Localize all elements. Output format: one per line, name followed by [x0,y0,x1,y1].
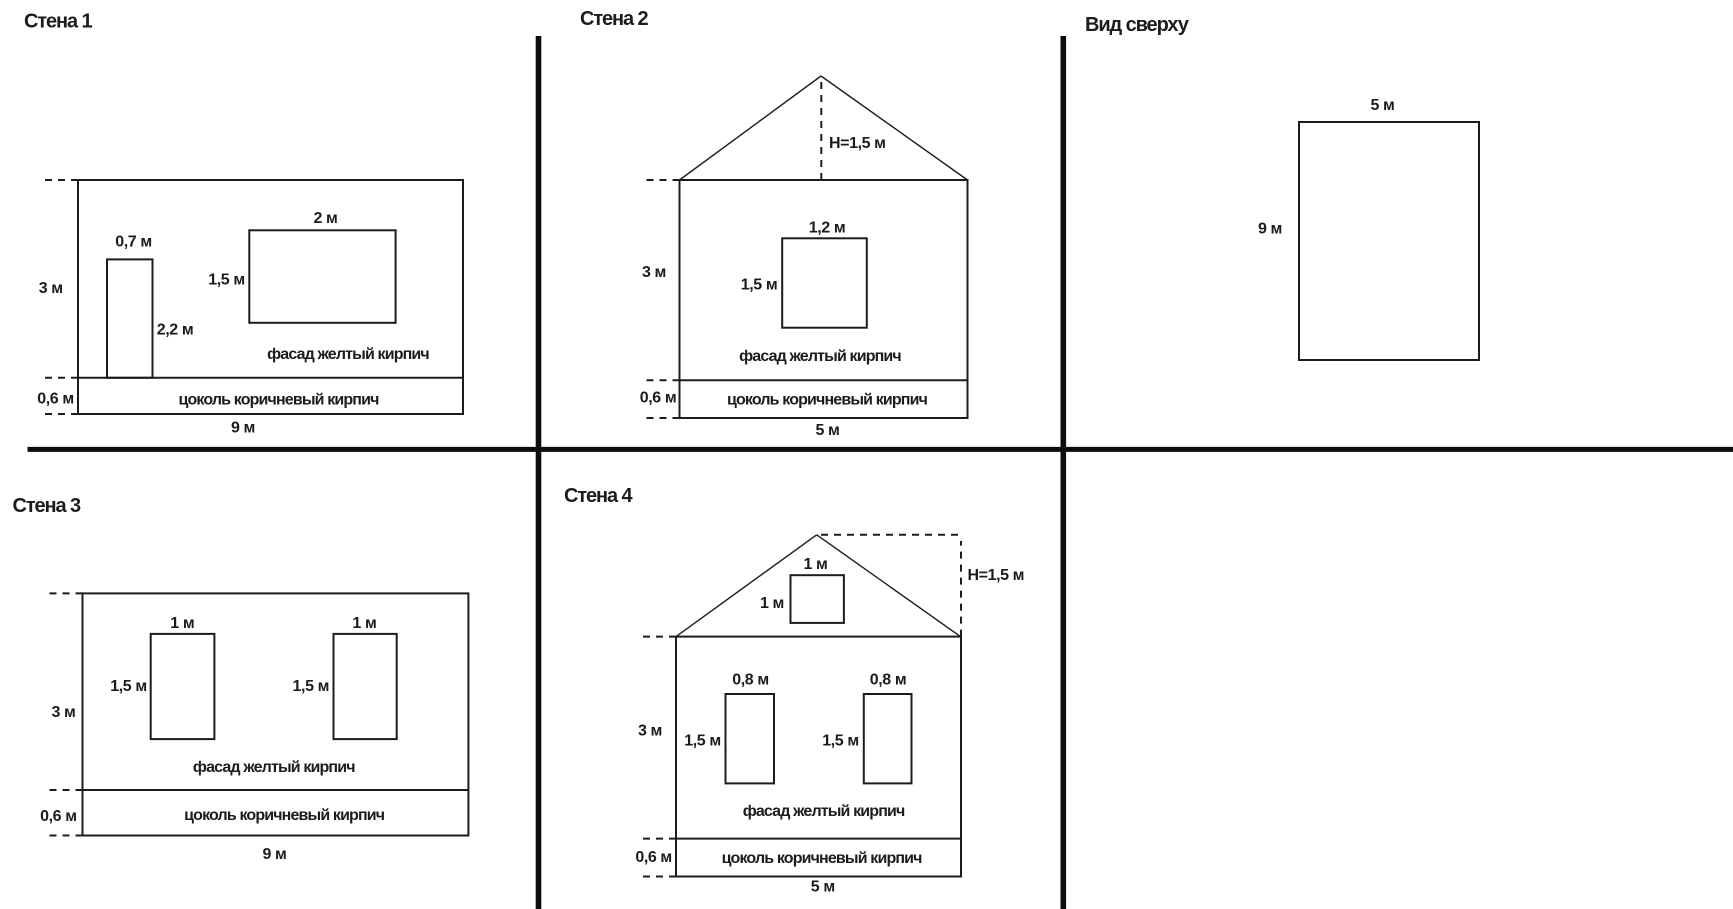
svg-text:цоколь коричневый кирпич: цоколь коричневый кирпич [727,391,928,408]
svg-text:9 м: 9 м [1258,221,1282,238]
svg-text:5 м: 5 м [811,879,835,896]
svg-text:5 м: 5 м [1371,97,1395,114]
svg-text:0,6 м: 0,6 м [640,390,677,407]
svg-text:Стена 4: Стена 4 [564,485,634,507]
svg-text:0,6 м: 0,6 м [40,808,77,825]
svg-text:цоколь коричневый кирпич: цоколь коричневый кирпич [178,392,379,409]
svg-text:Стена 1: Стена 1 [24,10,93,32]
svg-text:1 м: 1 м [804,556,828,573]
svg-text:фасад желтый кирпич: фасад желтый кирпич [739,348,901,365]
svg-text:0,8 м: 0,8 м [732,672,769,689]
svg-text:9 м: 9 м [231,420,255,437]
svg-text:0,6 м: 0,6 м [635,849,672,866]
svg-text:H=1,5 м: H=1,5 м [829,135,886,152]
svg-text:2 м: 2 м [314,210,338,227]
svg-text:3 м: 3 м [52,704,76,721]
svg-text:5 м: 5 м [816,422,840,439]
svg-text:1 м: 1 м [170,615,194,632]
svg-text:2,2 м: 2,2 м [157,322,194,339]
svg-text:3 м: 3 м [39,280,63,297]
svg-text:цоколь коричневый кирпич: цоколь коричневый кирпич [722,850,923,867]
svg-text:фасад желтый кирпич: фасад желтый кирпич [193,759,355,776]
svg-text:0,6 м: 0,6 м [37,391,74,408]
svg-text:Стена 2: Стена 2 [580,8,649,30]
svg-text:0,8 м: 0,8 м [870,672,907,689]
svg-text:1 м: 1 м [760,595,784,612]
svg-text:9 м: 9 м [263,846,287,863]
svg-text:1,2 м: 1,2 м [809,220,846,237]
svg-text:фасад желтый кирпич: фасад желтый кирпич [267,346,429,363]
svg-text:1 м: 1 м [352,615,376,632]
svg-text:3 м: 3 м [638,723,662,740]
svg-text:1,5 м: 1,5 м [741,277,778,294]
svg-text:1,5 м: 1,5 м [293,678,330,695]
svg-text:1,5 м: 1,5 м [110,678,147,695]
svg-text:фасад желтый кирпич: фасад желтый кирпич [743,803,905,820]
svg-text:1,5 м: 1,5 м [684,733,721,750]
svg-text:1,5 м: 1,5 м [822,733,859,750]
svg-text:0,7 м: 0,7 м [115,234,152,251]
svg-text:H=1,5 м: H=1,5 м [968,567,1025,584]
svg-text:цоколь коричневый кирпич: цоколь коричневый кирпич [184,807,385,824]
svg-text:3 м: 3 м [642,264,666,281]
svg-text:Стена 3: Стена 3 [13,495,82,517]
svg-text:1,5 м: 1,5 м [208,272,245,289]
svg-text:Вид сверху: Вид сверху [1085,14,1190,36]
